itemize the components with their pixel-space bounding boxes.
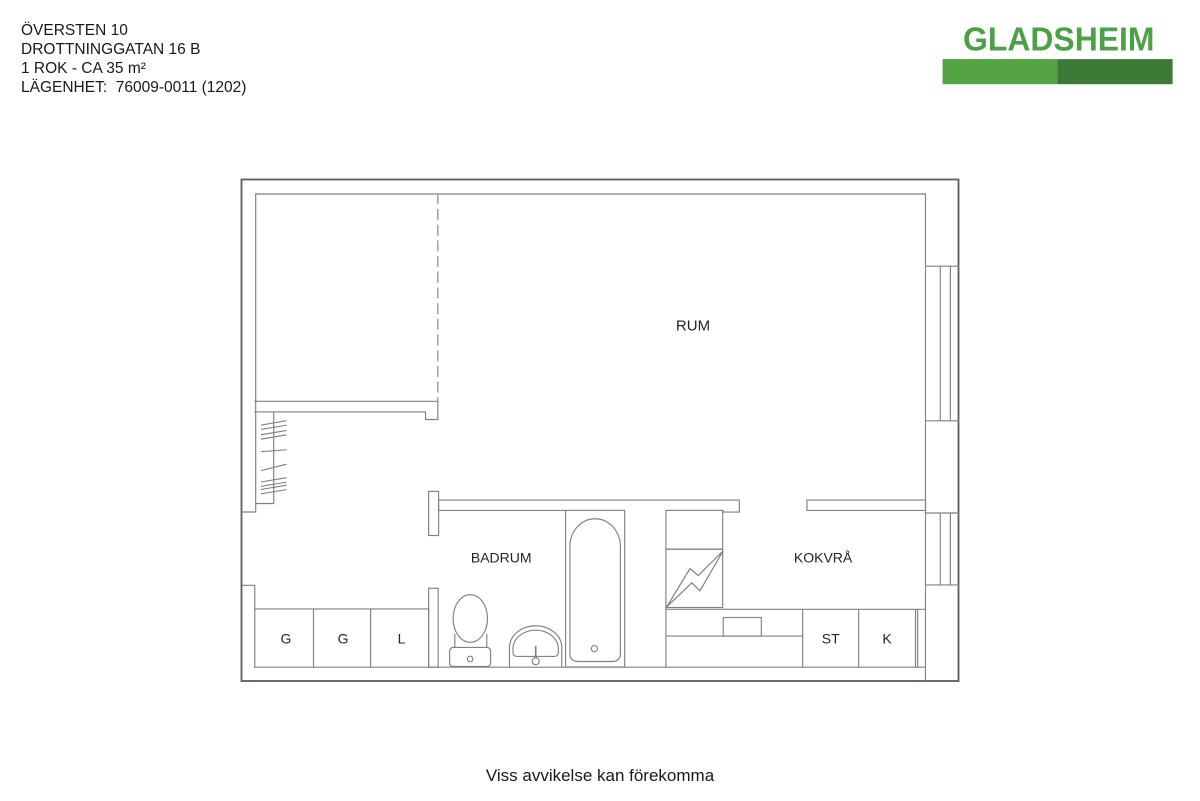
svg-text:RUM: RUM: [676, 317, 710, 334]
svg-text:ST: ST: [822, 630, 840, 646]
svg-text:L: L: [398, 630, 406, 646]
svg-text:G: G: [281, 630, 292, 646]
svg-text:K: K: [882, 630, 892, 646]
svg-text:G: G: [338, 630, 349, 646]
svg-text:BADRUM: BADRUM: [471, 549, 532, 565]
svg-text:GLADSHEIM: GLADSHEIM: [963, 21, 1155, 58]
svg-text:KOKVRÅ: KOKVRÅ: [794, 549, 853, 565]
